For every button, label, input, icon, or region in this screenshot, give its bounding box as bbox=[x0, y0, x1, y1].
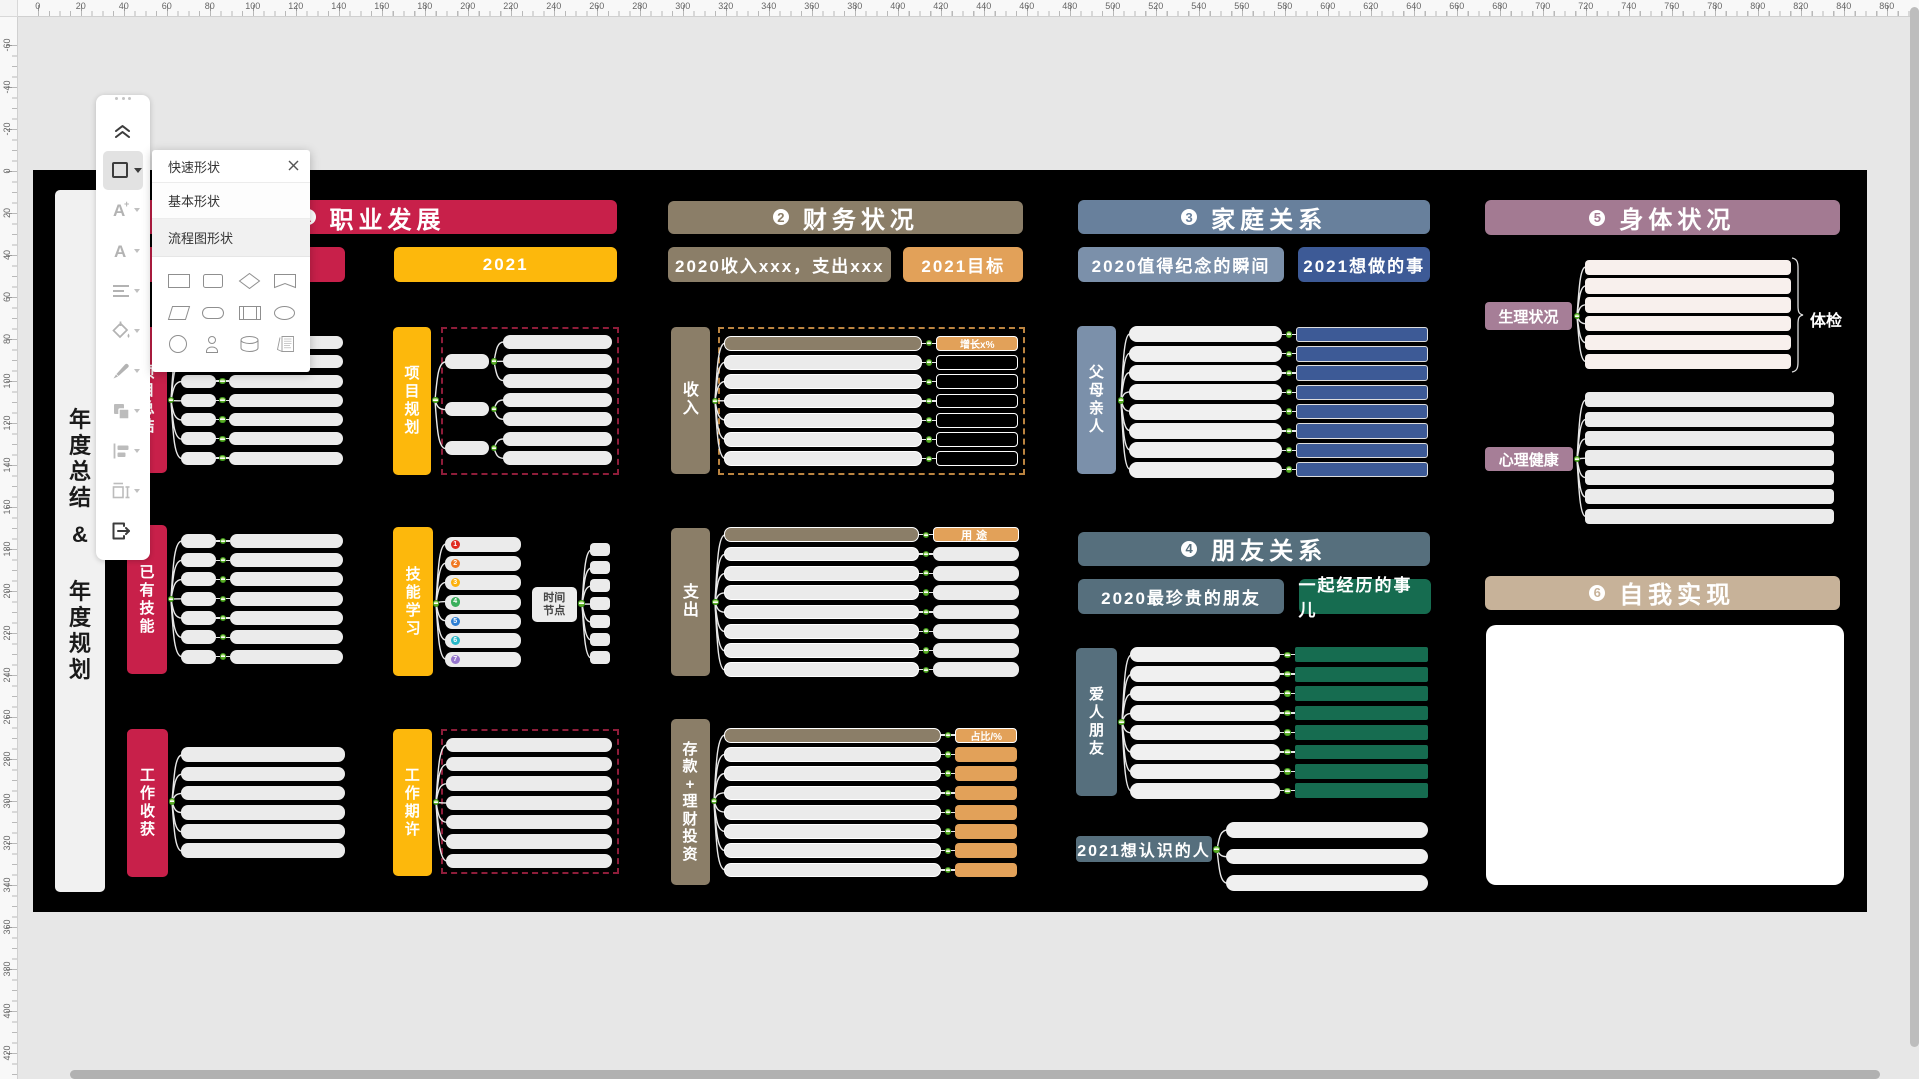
svg-text:+: + bbox=[124, 199, 129, 209]
svg-text:A: A bbox=[114, 242, 126, 261]
